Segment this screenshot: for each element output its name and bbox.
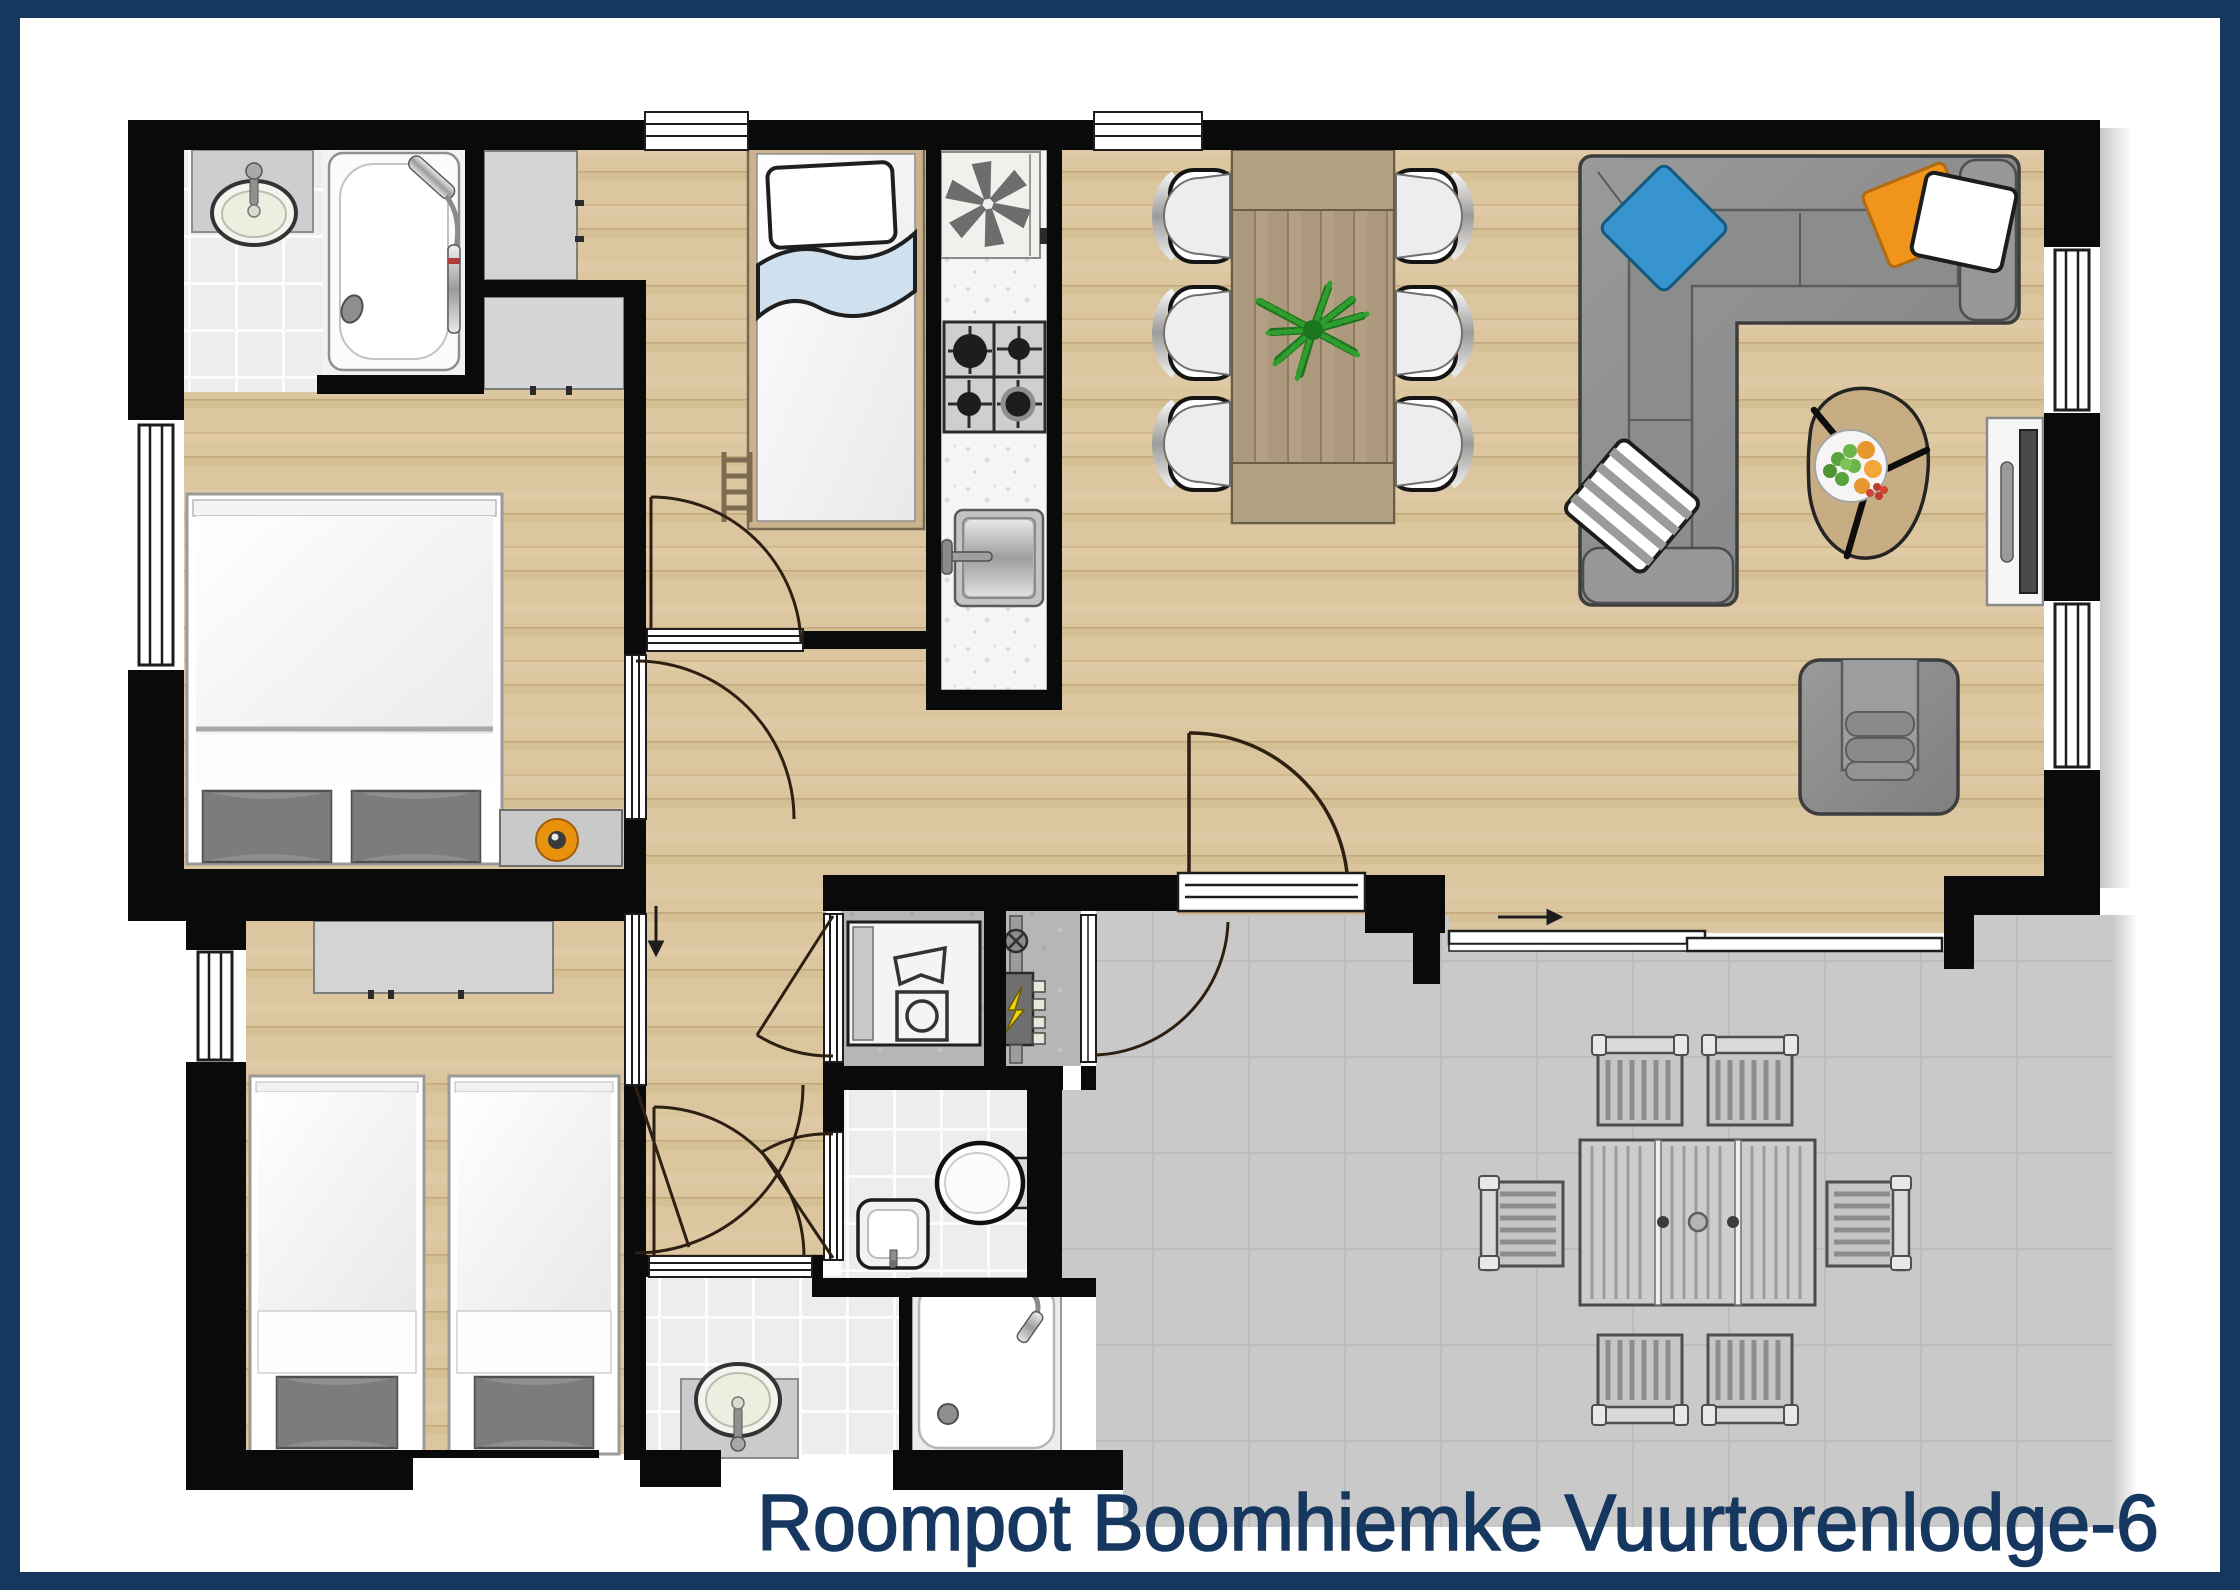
svg-text:Roompot Boomhiemke Vuurtorenlo: Roompot Boomhiemke Vuurtorenlodge-6 — [757, 1478, 2159, 1567]
